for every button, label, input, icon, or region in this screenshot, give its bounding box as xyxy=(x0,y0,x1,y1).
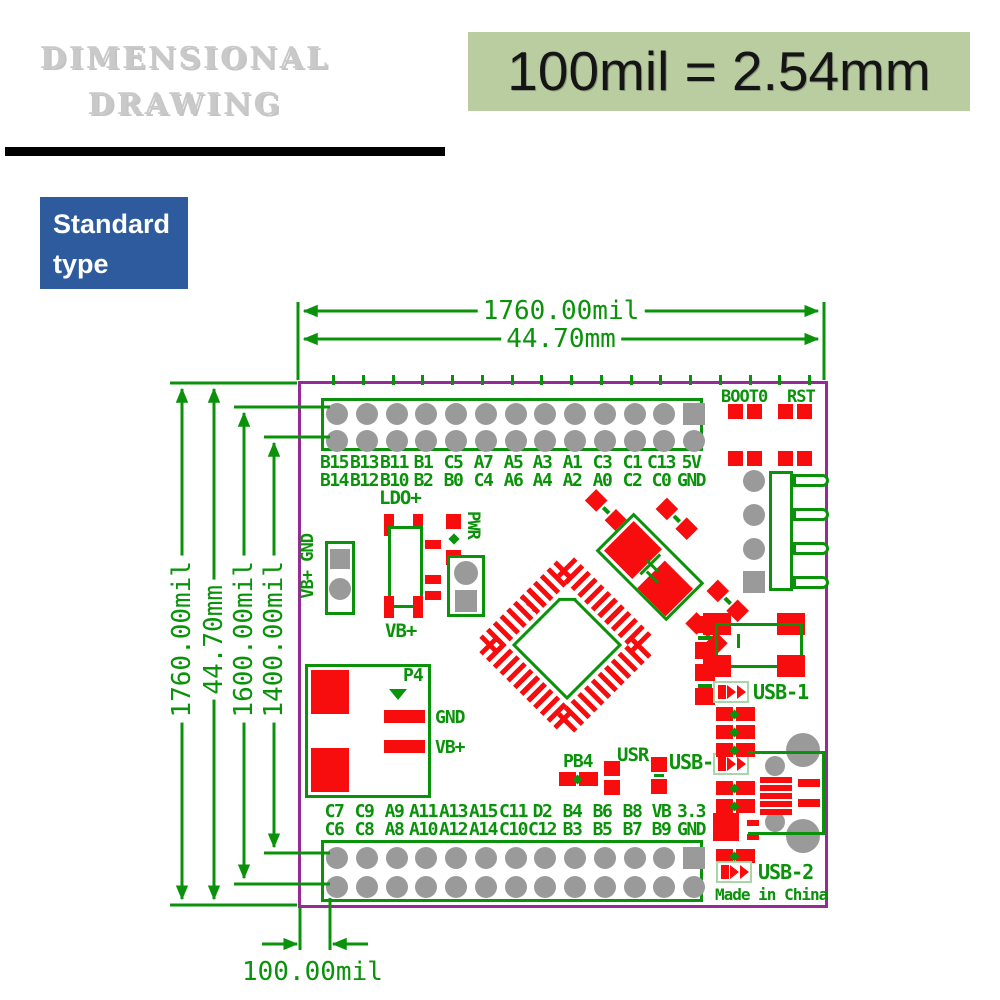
pcb-board-outline: BOOT0 RST LDO+ VB+ VB+ GND PWR xyxy=(298,381,828,908)
pin-label: B2 xyxy=(414,472,433,490)
pin-label: B9 xyxy=(652,821,671,839)
pin-hole xyxy=(683,430,705,452)
pin-hole xyxy=(475,847,497,869)
board-type-line1: Standard xyxy=(53,204,188,244)
p4-vb-label: VB+ xyxy=(435,739,465,758)
fiducial-tick xyxy=(749,375,752,385)
pin-hole xyxy=(386,430,408,452)
pin-hole xyxy=(594,430,616,452)
pin-hole xyxy=(534,403,556,425)
pin-hole xyxy=(445,430,467,452)
pin-hole xyxy=(624,876,646,898)
smd-pad xyxy=(425,591,441,600)
pin-hole xyxy=(683,876,705,898)
swd-pin xyxy=(793,576,829,589)
pin-label: C8 xyxy=(355,821,374,839)
pin-label: A12 xyxy=(439,821,467,839)
title-underline xyxy=(5,147,445,156)
pin-hole xyxy=(386,876,408,898)
jumper-pad xyxy=(747,451,762,466)
fiducial-tick xyxy=(511,375,514,385)
usb0-pads xyxy=(651,757,667,794)
fiducial-tick xyxy=(659,375,662,385)
swd-hole xyxy=(743,470,765,492)
ic-pad xyxy=(777,655,805,677)
pin-hole xyxy=(564,403,586,425)
pin-hole xyxy=(653,847,675,869)
battery-conn-pad xyxy=(330,549,350,569)
usb2-diode-icon xyxy=(716,861,752,883)
pin-hole xyxy=(624,403,646,425)
polarity-triangle-icon xyxy=(389,689,407,700)
pb4-led-pads xyxy=(559,772,598,786)
dim-left-mil: 1760.00mil xyxy=(167,556,197,723)
diode-pads xyxy=(716,743,755,757)
boot0-pad xyxy=(747,404,762,419)
pin-hole xyxy=(326,430,348,452)
ldo-pad xyxy=(413,596,423,618)
pin-hole xyxy=(534,847,556,869)
pin-hole xyxy=(475,430,497,452)
battery-conn-hole xyxy=(329,578,351,600)
jumper-pad xyxy=(797,451,812,466)
usr-label: USR xyxy=(617,746,648,766)
pin-label: A0 xyxy=(593,472,612,490)
pin-label: GND xyxy=(677,821,705,839)
usb-pad xyxy=(798,779,820,787)
p4-label: P4 xyxy=(403,667,423,686)
pin-hole xyxy=(415,847,437,869)
pin-hole xyxy=(326,403,348,425)
pin-hole xyxy=(415,430,437,452)
capacitor-pads xyxy=(656,498,698,540)
usb1-diode-icon xyxy=(713,681,749,703)
pin-label: C12 xyxy=(528,821,556,839)
pin-hole xyxy=(505,430,527,452)
dim-left-mm: 44.70mm xyxy=(199,580,229,700)
mcu-pin1-chamfer-line xyxy=(558,598,576,601)
jumper-pad xyxy=(778,451,793,466)
usb-outline xyxy=(822,751,825,835)
pin-label: C10 xyxy=(499,821,527,839)
smd-mark xyxy=(698,636,712,640)
fiducial-tick xyxy=(719,375,722,385)
smd-pad xyxy=(713,813,739,841)
usb-outline xyxy=(748,751,825,754)
ic-pad xyxy=(703,655,731,677)
pin-label: A4 xyxy=(533,472,552,490)
pin-hole xyxy=(415,876,437,898)
pin-hole xyxy=(356,847,378,869)
ldo-pad xyxy=(384,596,394,618)
diode-pads xyxy=(716,781,755,795)
swd-header-body xyxy=(769,471,793,591)
pin-hole xyxy=(445,847,467,869)
jumper-pad xyxy=(728,451,743,466)
p4-vb-pad xyxy=(384,740,425,753)
smd-pad xyxy=(747,820,759,826)
pin-hole xyxy=(445,403,467,425)
swd-pin xyxy=(793,474,829,487)
fiducial-tick xyxy=(778,375,781,385)
fiducial-tick xyxy=(570,375,573,385)
diode-pads xyxy=(716,725,755,739)
dim-top-mm: 44.70mm xyxy=(501,325,621,353)
usb-mount-hole xyxy=(765,812,785,832)
pin-label: C0 xyxy=(652,472,671,490)
pin-hole xyxy=(534,876,556,898)
boot0-pad xyxy=(728,404,743,419)
pwr-label: PWR xyxy=(463,511,481,539)
usb-shell-hole xyxy=(786,819,820,853)
usb-pin xyxy=(760,801,792,807)
pin-hole xyxy=(356,430,378,452)
dim-left-1600: 1600.00mil xyxy=(229,556,259,723)
fiducial-tick xyxy=(362,375,365,385)
pin-hole xyxy=(475,876,497,898)
usb-pin xyxy=(760,809,792,815)
pin-hole xyxy=(475,403,497,425)
pin-label: C4 xyxy=(474,472,493,490)
made-in-label: Made in China xyxy=(715,887,827,904)
dim-left-1400: 1400.00mil xyxy=(259,556,289,723)
pin-hole xyxy=(445,876,467,898)
pb4-label: PB4 xyxy=(563,753,593,772)
fiducial-tick xyxy=(689,375,692,385)
pwr-led-mark xyxy=(448,533,459,544)
aux-conn-hole xyxy=(454,561,478,585)
fiducial-tick xyxy=(600,375,603,385)
board-type-line2: type xyxy=(53,244,188,284)
usb2-label: USB-2 xyxy=(758,862,813,883)
pin-label: A14 xyxy=(469,821,497,839)
usb-outline xyxy=(748,832,825,835)
rst-pad xyxy=(797,404,812,419)
fiducial-tick xyxy=(451,375,454,385)
swd-pin xyxy=(793,542,829,555)
usb-pin xyxy=(760,793,792,799)
diode-pads xyxy=(716,799,755,813)
pin-label: A10 xyxy=(409,821,437,839)
swd-pin xyxy=(793,508,829,521)
dim-pitch: 100.00mil xyxy=(237,958,388,986)
pin-label: A2 xyxy=(563,472,582,490)
pin-hole xyxy=(534,430,556,452)
pin-label: B7 xyxy=(623,821,642,839)
page-title-line1: DIMENSIONAL xyxy=(20,36,350,82)
pin-hole xyxy=(594,403,616,425)
pin-hole xyxy=(415,403,437,425)
pin-hole xyxy=(356,876,378,898)
pin-hole xyxy=(624,430,646,452)
page-title-line2: DRAWING xyxy=(20,82,350,128)
pin-hole xyxy=(505,847,527,869)
pin-label: B3 xyxy=(563,821,582,839)
p4-pad xyxy=(311,670,349,714)
fiducial-tick xyxy=(630,375,633,385)
fiducial-tick xyxy=(481,375,484,385)
pin-hole xyxy=(505,403,527,425)
usb-mount-hole xyxy=(765,756,785,776)
swd-hole xyxy=(743,538,765,560)
ic-mark xyxy=(737,634,740,648)
pin-label: GND xyxy=(677,472,705,490)
pin-label: B14 xyxy=(320,472,348,490)
usb-shell-hole xyxy=(786,733,820,767)
board-type-badge: Standard type xyxy=(40,197,188,289)
smd-pad xyxy=(425,575,441,584)
unit-conversion-note: 100mil = 2.54mm xyxy=(468,32,970,111)
pin-hole xyxy=(653,403,675,425)
top-pin-header xyxy=(321,398,703,451)
fiducial-tick xyxy=(332,375,335,385)
ldo-vb-label: VB+ xyxy=(385,622,416,642)
pin-label: B10 xyxy=(380,472,408,490)
rst-pad xyxy=(778,404,793,419)
pin-hole xyxy=(653,876,675,898)
usb-pad xyxy=(798,799,820,807)
pin1-square-pad xyxy=(683,847,705,869)
usb-pin xyxy=(760,777,792,783)
pin-hole xyxy=(326,847,348,869)
page-title: DIMENSIONAL DRAWING xyxy=(20,36,350,128)
pin-hole xyxy=(386,403,408,425)
fiducial-tick xyxy=(808,375,811,385)
pin-hole xyxy=(326,876,348,898)
pin-hole xyxy=(564,430,586,452)
dim-top-mil: 1760.00mil xyxy=(478,297,645,325)
battery-conn-label: VB+ GND xyxy=(300,534,318,599)
pin-hole xyxy=(386,847,408,869)
pin-label: B0 xyxy=(444,472,463,490)
fiducial-tick xyxy=(392,375,395,385)
pin1-square-pad xyxy=(683,403,705,425)
swd-hole xyxy=(743,504,765,526)
usb1-label: USB-1 xyxy=(753,682,808,703)
fiducial-tick xyxy=(540,375,543,385)
pin-hole xyxy=(594,847,616,869)
ldo-label: LDO+ xyxy=(379,489,421,509)
pin-hole xyxy=(564,847,586,869)
p4-gnd-label: GND xyxy=(435,709,465,728)
pin-hole xyxy=(505,876,527,898)
pin-hole xyxy=(356,403,378,425)
pin-hole xyxy=(653,430,675,452)
fiducial-tick xyxy=(421,375,424,385)
smd-pad xyxy=(695,688,715,705)
smd-pad xyxy=(425,540,441,549)
diode-pads xyxy=(716,707,755,721)
aux-conn-pad xyxy=(455,590,477,612)
pin-hole xyxy=(564,876,586,898)
p4-pad xyxy=(311,748,349,792)
usr-button-pads xyxy=(604,761,620,795)
pin-label: A8 xyxy=(385,821,404,839)
pin-label: C6 xyxy=(325,821,344,839)
bottom-pin-header xyxy=(321,840,703,902)
usb-pin xyxy=(760,785,792,791)
pin-hole xyxy=(594,876,616,898)
pin-label: C2 xyxy=(623,472,642,490)
pin-hole xyxy=(624,847,646,869)
pin-label: B5 xyxy=(593,821,612,839)
pin-label: A6 xyxy=(504,472,523,490)
pin-label: B12 xyxy=(350,472,378,490)
p4-gnd-pad xyxy=(384,710,425,723)
pwr-led-pad xyxy=(446,514,461,529)
